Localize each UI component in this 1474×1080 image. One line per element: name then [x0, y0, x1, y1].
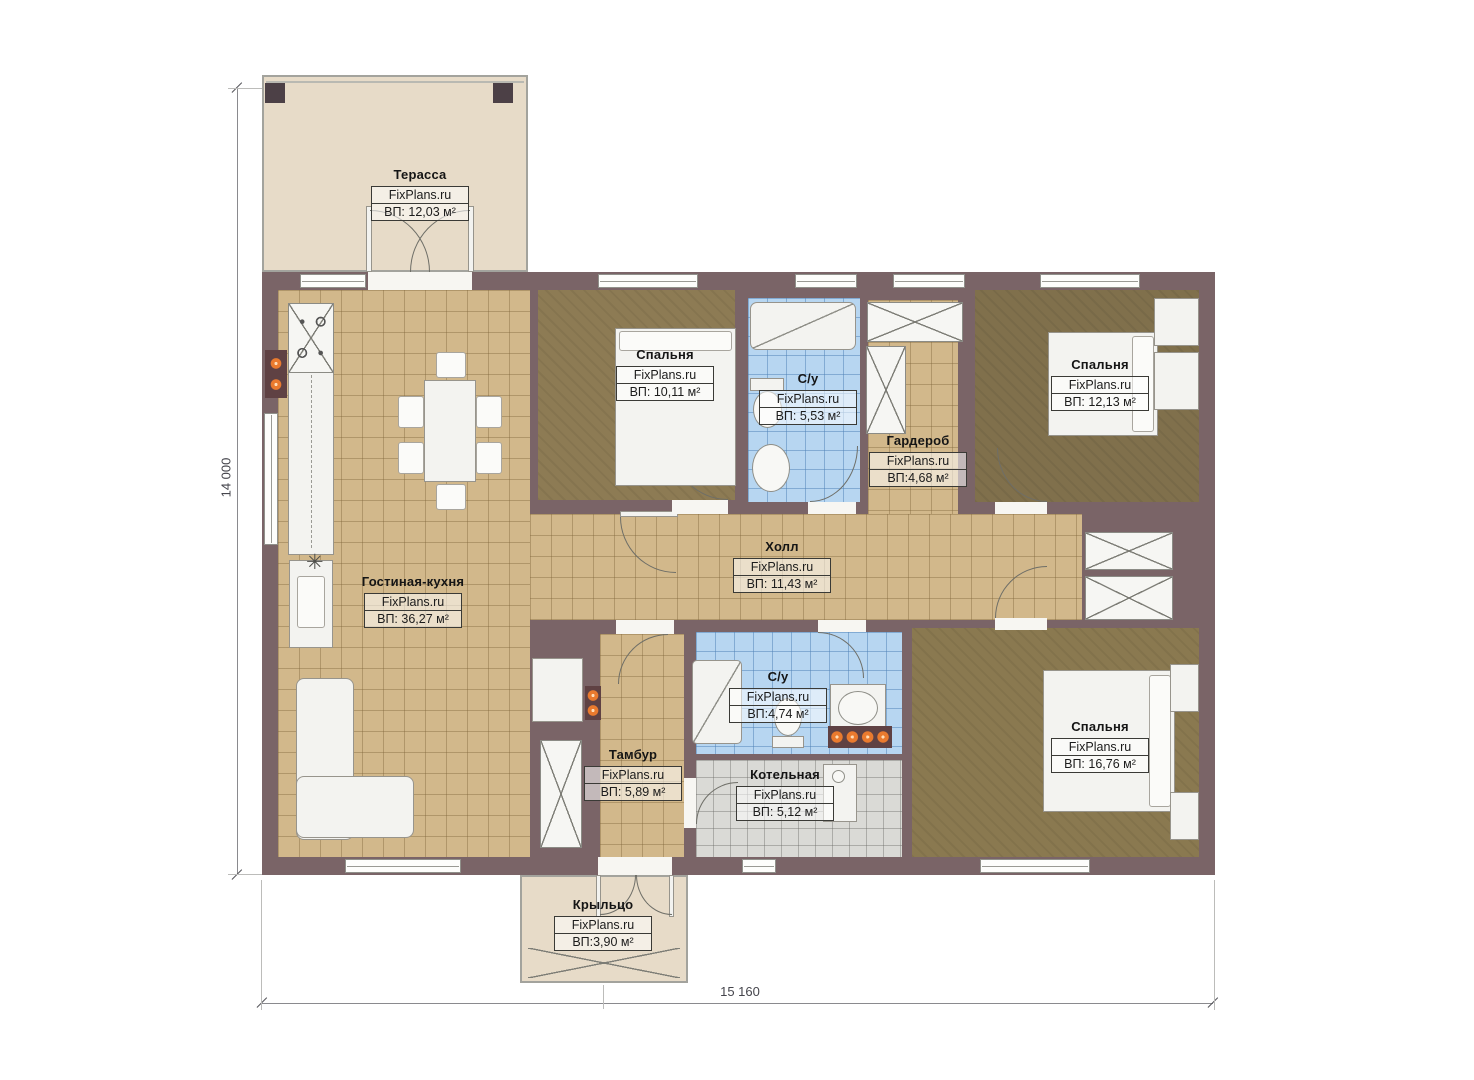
bedroom-3-door-opening [995, 618, 1047, 630]
terrace-edge-line [266, 81, 524, 83]
room-brand: FixPlans.ru [365, 594, 461, 611]
room-brand: FixPlans.ru [372, 187, 468, 204]
room-brand: FixPlans.ru [734, 559, 830, 576]
bedroom-1-door-opening [672, 500, 728, 514]
room-area: ВП: 16,76 м² [1052, 756, 1148, 772]
extension-line [228, 874, 262, 875]
hall-closet-1 [1085, 532, 1173, 570]
room-area: ВП:4,74 м² [730, 706, 826, 722]
room-area: ВП: 12,13 м² [1052, 394, 1148, 410]
room-brand: FixPlans.ru [585, 767, 681, 784]
room-name: Гардероб [860, 434, 976, 449]
floor-plan: ✳ Терасса FixPlans.ru [0, 0, 1474, 1080]
room-brand: FixPlans.ru [1052, 377, 1148, 394]
room-name: С/у [720, 670, 836, 685]
sink-2-basin [838, 691, 878, 725]
room-brand: FixPlans.ru [737, 787, 833, 804]
sofa-horizontal [296, 776, 414, 838]
room-brand: FixPlans.ru [1052, 739, 1148, 756]
window-living-left [264, 413, 278, 545]
bedroom-3-nightstand-2 [1170, 792, 1199, 840]
room-area: ВП:4,68 м² [870, 470, 966, 486]
label-boiler-room: Котельная FixPlans.ru ВП: 5,12 м² [727, 768, 843, 821]
vestibule-door-opening [616, 620, 674, 634]
extension-line [261, 880, 262, 1010]
label-hall: Холл FixPlans.ru ВП: 11,43 м² [724, 540, 840, 593]
wardrobe-cabinet-left [866, 346, 906, 434]
tv-cabinet [532, 658, 583, 722]
label-porch: Крыльцо FixPlans.ru ВП:3,90 м² [545, 898, 661, 951]
porch-steps [528, 948, 680, 978]
bathtub [750, 302, 856, 350]
window-bedroom-3 [980, 859, 1090, 873]
front-door-opening [598, 857, 672, 875]
kitchen-sink [297, 576, 325, 628]
label-bedroom-1: Спальня FixPlans.ru ВП: 10,11 м² [607, 348, 723, 401]
bedroom-3-nightstand-1 [1170, 664, 1199, 712]
chair-bottom [436, 484, 466, 510]
room-area: ВП: 5,53 м² [760, 408, 856, 424]
extension-line [603, 985, 604, 1009]
label-vestibule: Тамбур FixPlans.ru ВП: 5,89 м² [575, 748, 691, 801]
dimension-height: 14 000 [219, 448, 234, 508]
room-name: Спальня [1042, 358, 1158, 373]
extension-line [1214, 880, 1215, 1010]
label-bathroom-2: С/у FixPlans.ru ВП:4,74 м² [720, 670, 836, 723]
chair-top [436, 352, 466, 378]
towel-radiator [828, 726, 892, 748]
label-bathroom-1: С/у FixPlans.ru ВП: 5,53 м² [750, 372, 866, 425]
terrace-post-left [265, 83, 285, 103]
terrace-post-right [493, 83, 513, 103]
label-terrace: Терасса FixPlans.ru ВП: 12,03 м² [362, 168, 478, 221]
room-name: Холл [724, 540, 840, 555]
room-area: ВП: 5,89 м² [585, 784, 681, 800]
room-brand: FixPlans.ru [555, 917, 651, 934]
chair-left-1 [398, 396, 424, 428]
room-brand: FixPlans.ru [730, 689, 826, 706]
window-bedroom-1 [598, 274, 698, 288]
radiator-living [585, 686, 601, 720]
window-bedroom-2 [1040, 274, 1140, 288]
room-name: Крыльцо [545, 898, 661, 913]
room-area: ВП: 11,43 м² [734, 576, 830, 592]
room-area: ВП: 36,27 м² [365, 611, 461, 627]
hall-closet-2 [1085, 576, 1173, 620]
room-area: ВП:3,90 м² [555, 934, 651, 950]
sink-1 [752, 444, 790, 492]
room-name: Гостиная-кухня [355, 575, 471, 590]
label-bedroom-3: Спальня FixPlans.ru ВП: 16,76 м² [1042, 720, 1158, 773]
extension-line [228, 88, 262, 89]
room-brand: FixPlans.ru [870, 453, 966, 470]
dimension-width: 15 160 [705, 984, 775, 999]
bedroom-2-door-opening [995, 502, 1047, 514]
window-bathroom-1 [795, 274, 857, 288]
room-name: С/у [750, 372, 866, 387]
room-name: Спальня [607, 348, 723, 363]
dimension-line-horizontal [262, 1003, 1213, 1004]
toilet-2-tank [772, 736, 804, 748]
terrace-door-opening [368, 272, 472, 290]
radiator-kitchen [265, 350, 287, 398]
window-living-bottom [345, 859, 461, 873]
wardrobe-cabinet-top [867, 302, 963, 342]
label-wardrobe: Гардероб FixPlans.ru ВП:4,68 м² [860, 434, 976, 487]
chair-left-2 [398, 442, 424, 474]
label-living-kitchen: Гостиная-кухня FixPlans.ru ВП: 36,27 м² [355, 575, 471, 628]
room-area: ВП: 10,11 м² [617, 384, 713, 400]
room-area: ВП: 5,12 м² [737, 804, 833, 820]
dimension-line-vertical [237, 88, 238, 875]
bedroom-2-shelf-2 [1154, 352, 1199, 410]
room-name: Спальня [1042, 720, 1158, 735]
stove [288, 303, 334, 373]
fan-symbol: ✳ [306, 552, 324, 573]
bathroom-1-door-opening [808, 502, 856, 514]
room-name: Терасса [362, 168, 478, 183]
bathroom-2-door-opening [818, 620, 866, 632]
room-name: Котельная [727, 768, 843, 783]
window-living-top [300, 274, 366, 288]
window-wardrobe [893, 274, 965, 288]
room-brand: FixPlans.ru [617, 367, 713, 384]
bedroom-2-shelf-1 [1154, 298, 1199, 346]
room-area: ВП: 12,03 м² [372, 204, 468, 220]
room-brand: FixPlans.ru [760, 391, 856, 408]
window-boiler [742, 859, 776, 873]
chair-right-1 [476, 396, 502, 428]
room-name: Тамбур [575, 748, 691, 763]
dining-table [424, 380, 476, 482]
label-bedroom-2: Спальня FixPlans.ru ВП: 12,13 м² [1042, 358, 1158, 411]
chair-right-2 [476, 442, 502, 474]
